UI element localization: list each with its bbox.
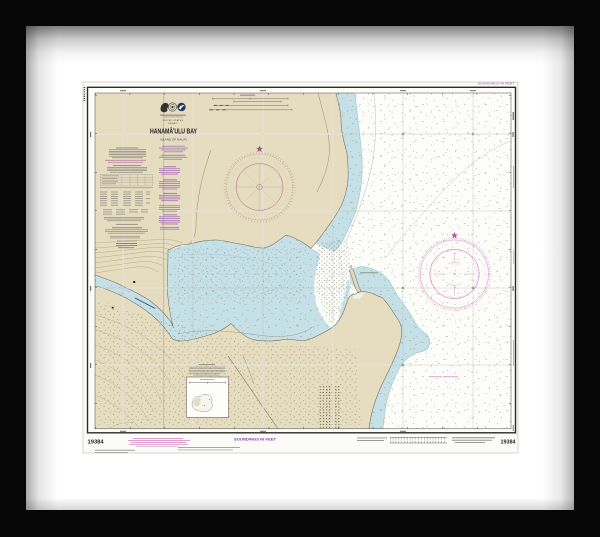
svg-text:HAWAII: HAWAII xyxy=(168,122,177,125)
svg-text:19384: 19384 xyxy=(501,440,516,446)
svg-text:SOUNDINGS IN FEET: SOUNDINGS IN FEET xyxy=(478,81,515,85)
svg-text:ISLAND OF KAUAʹI: ISLAND OF KAUAʹI xyxy=(160,138,187,142)
svg-text:SOUNDINGS IN FEET: SOUNDINGS IN FEET xyxy=(234,437,277,441)
svg-text:HANAMĀʹULU BAY: HANAMĀʹULU BAY xyxy=(150,128,197,136)
svg-text:19384: 19384 xyxy=(88,439,105,445)
svg-text:UNITED STATES: UNITED STATES xyxy=(163,119,184,122)
